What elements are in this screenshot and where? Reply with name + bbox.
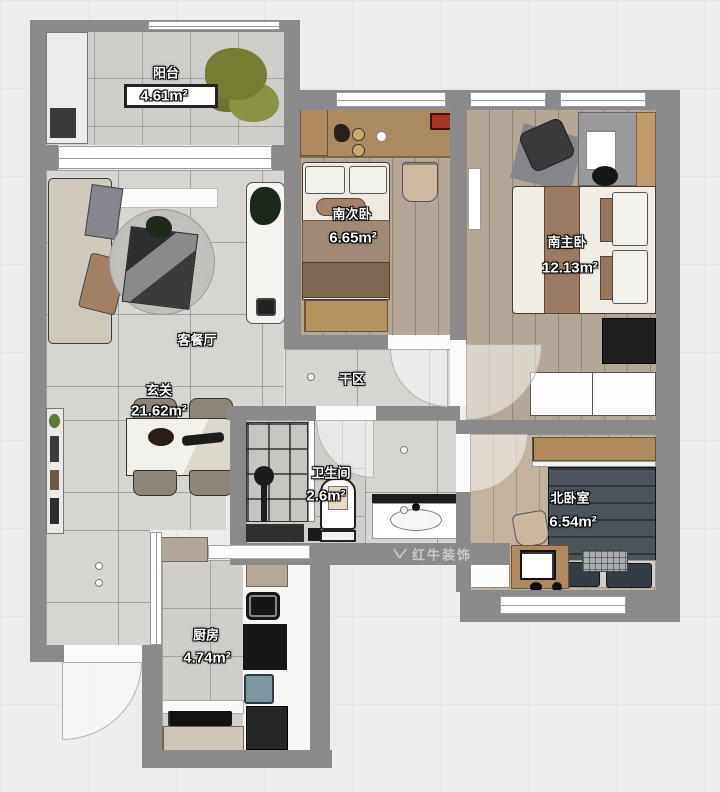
balcony-cabinet-box xyxy=(50,108,76,138)
room-label-living: 客餐厅 xyxy=(177,330,216,349)
master-desk xyxy=(636,112,656,192)
dining-table xyxy=(126,418,238,476)
coffee-table-plant-icon xyxy=(146,216,172,238)
wall-master-north xyxy=(456,420,680,435)
wall-pier xyxy=(46,145,58,170)
kitchen-top-cabinet xyxy=(160,537,208,562)
master-desk-chair xyxy=(592,166,618,186)
bed-pillow xyxy=(305,166,345,194)
kitchen-sliding-door xyxy=(208,545,310,559)
room-area-foyer: 21.62m² xyxy=(131,403,187,420)
vanity-counter-edge xyxy=(372,494,460,503)
wall-north-left-upper xyxy=(456,420,470,434)
master-desk-papers xyxy=(586,130,616,170)
shower-pole xyxy=(261,484,267,522)
tv-console-device xyxy=(256,298,276,316)
desk-lamp xyxy=(376,131,387,142)
wall-left-outer xyxy=(30,20,46,662)
south2-door-gap xyxy=(388,335,450,349)
wall-pier xyxy=(272,145,284,170)
bed-pillow xyxy=(349,166,387,194)
room-area-south-second: 6.65m² xyxy=(329,230,377,247)
kitchen-counter-dark xyxy=(243,624,287,670)
laptop-icon xyxy=(520,550,556,580)
desk-decor xyxy=(334,124,350,142)
entry-door-arc xyxy=(62,662,142,740)
entry-kitchen-glass xyxy=(150,532,162,645)
bed-throw xyxy=(302,262,390,298)
south-second-wall-cabinet xyxy=(300,108,328,156)
wall-bathroom-left xyxy=(230,415,246,545)
wall-north-left-lower xyxy=(456,492,470,592)
entry-door-gap xyxy=(64,645,142,662)
master-wardrobe xyxy=(530,372,656,416)
floor-dot xyxy=(400,446,408,454)
wall-kitchen-bottom xyxy=(142,750,332,768)
room-label-dry-area: 干区 xyxy=(339,369,365,388)
north-door-gap xyxy=(456,434,470,492)
south2-window xyxy=(336,92,446,107)
watermark: 红牛装饰 xyxy=(392,545,472,564)
balcony-living-window xyxy=(58,146,272,169)
dining-chair xyxy=(189,470,233,496)
master-door-gap xyxy=(450,340,466,406)
bath-mat xyxy=(242,524,304,542)
room-area-master: 12.13m² xyxy=(542,260,598,277)
room-area-kitchen: 4.74m² xyxy=(183,650,231,667)
washer-icon xyxy=(246,592,280,620)
bath-bin xyxy=(308,528,321,541)
bed-pillow xyxy=(612,250,648,304)
floor-dot xyxy=(400,506,408,514)
stove-icon xyxy=(168,711,232,726)
kitchen-base-cabinets xyxy=(162,726,244,752)
wall-panel xyxy=(468,168,481,230)
knit-cushion xyxy=(582,550,628,572)
fridge xyxy=(246,706,288,750)
north-window xyxy=(500,596,626,614)
entry-corridor-floor xyxy=(46,530,150,645)
bed-pillow xyxy=(612,192,648,246)
bed-cushion xyxy=(600,256,613,300)
master-tv-cabinet xyxy=(602,318,656,364)
shoe-cabinet-item xyxy=(50,498,59,524)
wall-entry-bottom xyxy=(30,645,64,662)
shoe-cabinet-plant-icon xyxy=(49,414,60,428)
floor-dot xyxy=(95,562,103,570)
room-label-south-second: 南次卧 xyxy=(332,204,371,223)
wall-south2-bottom xyxy=(284,335,388,349)
room-label-balcony: 阳台 xyxy=(153,63,179,82)
master-wardrobe-divider xyxy=(592,372,593,416)
room-label-north: 北卧室 xyxy=(550,488,589,507)
bathroom-door-gap xyxy=(316,406,376,420)
room-label-master: 南主卧 xyxy=(547,232,586,251)
floor-plan: { "plan": { "watermark": "红牛装饰", "rooms"… xyxy=(0,0,720,792)
shoe-cabinet-item xyxy=(50,470,59,490)
wall-south2-master xyxy=(450,110,466,340)
floor-dot xyxy=(307,373,315,381)
room-label-foyer: 玄关 xyxy=(146,380,172,399)
shoe-cabinet-item xyxy=(50,436,59,462)
room-area-bathroom: 2.6m² xyxy=(306,488,345,505)
wall-right-outer xyxy=(656,90,680,622)
dining-table-decor xyxy=(148,428,174,446)
shower-head-icon xyxy=(254,466,274,486)
toilet-tank xyxy=(320,530,356,542)
watermark-text: 红牛装饰 xyxy=(412,545,472,564)
floor-dot xyxy=(95,579,103,587)
vanity-basin xyxy=(390,509,442,531)
brand-bull-icon xyxy=(392,547,408,561)
living-console xyxy=(112,188,218,208)
corridor-chair xyxy=(402,162,438,202)
room-label-bathroom: 卫生间 xyxy=(311,463,350,482)
vanity-faucet xyxy=(412,503,420,511)
bed-cushion xyxy=(600,198,613,242)
dining-chair xyxy=(133,470,177,496)
wall-dryarea-bottom xyxy=(376,406,460,420)
room-label-kitchen: 厨房 xyxy=(193,625,219,644)
room-area-north: 6.54m² xyxy=(549,514,597,531)
wall-kitchen-left xyxy=(142,645,162,752)
coffee-table xyxy=(122,226,199,310)
master-window xyxy=(470,92,546,107)
desk-cup xyxy=(352,144,365,157)
north-headboard-cabinets xyxy=(532,437,656,461)
desk-cup xyxy=(352,128,365,141)
balcony-window xyxy=(148,21,280,30)
south-second-bench xyxy=(304,300,388,332)
wall-kitchen-right xyxy=(310,545,330,752)
kitchen-sink xyxy=(244,674,274,704)
master-window xyxy=(560,92,646,107)
room-area-balcony: 4.61m² xyxy=(140,88,188,105)
wall-living-south2 xyxy=(284,110,300,349)
